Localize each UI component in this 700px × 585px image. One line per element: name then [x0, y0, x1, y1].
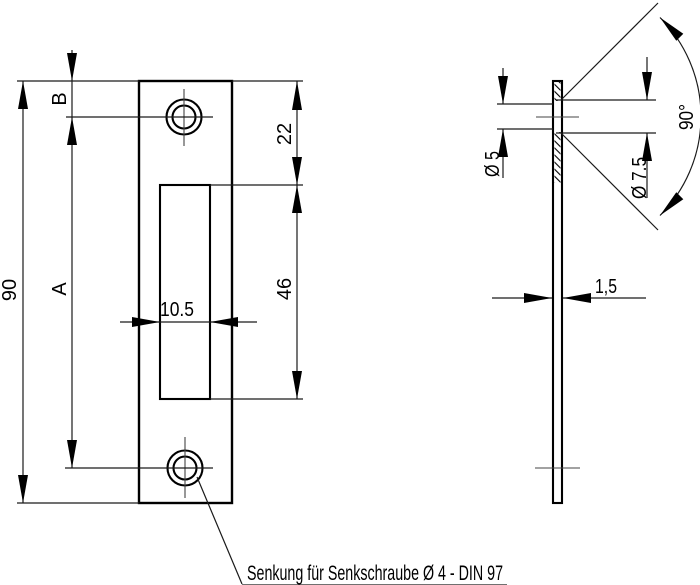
- dim-label-slot-width: 10.5: [160, 299, 194, 321]
- dim-label-top-to-slot: 22: [274, 123, 296, 145]
- leader-line: [197, 477, 242, 584]
- technical-drawing: 90 A B 22 46 10.5: [0, 0, 700, 585]
- latch-slot: [160, 185, 210, 399]
- callout: Senkung für Senkschraube Ø 4 - DIN 97: [197, 477, 507, 585]
- dim-label-countersink-diameter: Ø 7.5: [629, 157, 651, 199]
- side-view: Ø 5 Ø 7.5 90° 1,5: [482, 3, 700, 503]
- dim-label-countersink-angle: 90°: [676, 104, 698, 130]
- side-dimension-lines: [492, 57, 647, 298]
- dim-label-overall-height: 90: [0, 279, 21, 301]
- countersink-flank-upper: [561, 3, 658, 100]
- dim-label-thickness: 1,5: [595, 276, 617, 298]
- section-hatch-upper: [555, 82, 561, 101]
- drawing-canvas: 90 A B 22 46 10.5: [0, 0, 700, 585]
- dim-label-hole-diameter: Ø 5: [482, 151, 504, 177]
- dim-label-hole-distance: A: [49, 282, 71, 296]
- dim-label-top-to-hole: B: [49, 92, 71, 105]
- dim-label-slot-height: 46: [274, 278, 296, 300]
- section-hatch-lower: [555, 132, 561, 183]
- front-view: 90 A B 22 46 10.5: [0, 50, 303, 503]
- callout-text: Senkung für Senkschraube Ø 4 - DIN 97: [247, 562, 503, 585]
